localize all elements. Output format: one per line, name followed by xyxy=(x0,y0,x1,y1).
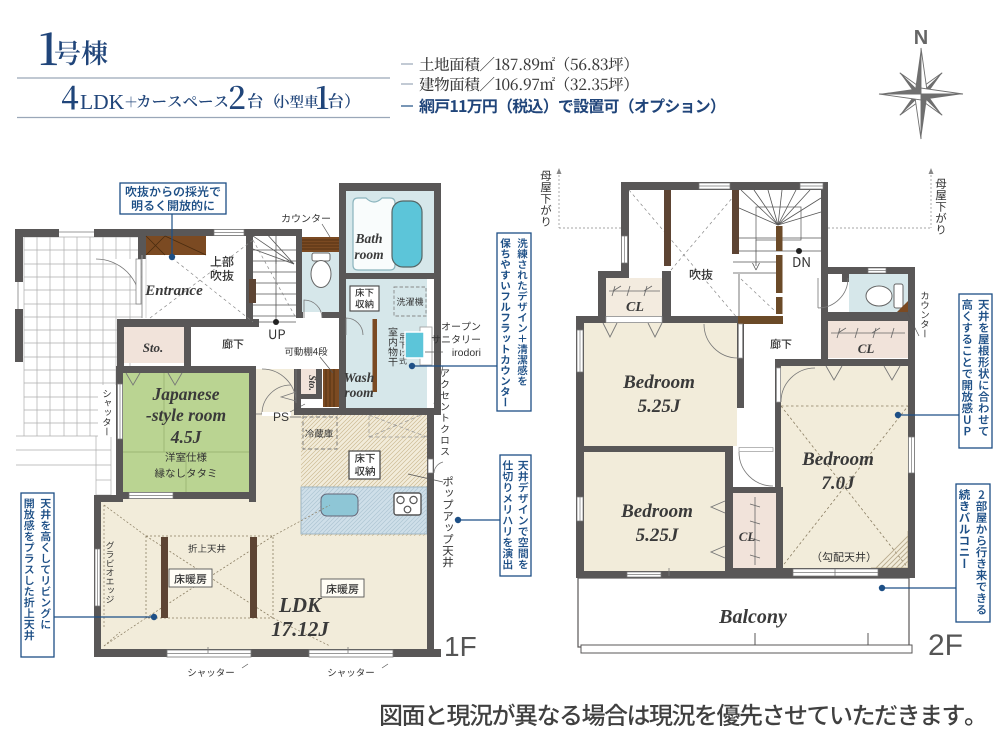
svg-text:7.0J: 7.0J xyxy=(821,473,855,494)
svg-text:room: room xyxy=(344,385,373,400)
svg-text:4.5J: 4.5J xyxy=(170,427,203,447)
svg-text:CL: CL xyxy=(858,341,875,356)
svg-text:CL: CL xyxy=(626,300,644,315)
svg-text:Entrance: Entrance xyxy=(144,283,203,299)
svg-text:1F: 1F xyxy=(444,631,477,662)
svg-text:N: N xyxy=(914,27,928,49)
svg-text:17.12J: 17.12J xyxy=(271,617,330,641)
svg-text:PS: PS xyxy=(273,410,289,424)
svg-text:irodori: irodori xyxy=(452,347,481,359)
svg-text:Bedroom: Bedroom xyxy=(801,449,874,470)
svg-text:Wash: Wash xyxy=(344,370,375,385)
svg-text:room: room xyxy=(354,247,383,262)
svg-text:CL: CL xyxy=(739,529,756,544)
svg-text:Sto.: Sto. xyxy=(143,340,164,355)
svg-text:Bedroom: Bedroom xyxy=(620,501,693,522)
svg-text:Sto.: Sto. xyxy=(306,375,317,391)
svg-text:LDK: LDK xyxy=(278,593,323,617)
svg-text:Bedroom: Bedroom xyxy=(622,372,695,393)
svg-text:Balcony: Balcony xyxy=(718,606,787,628)
svg-text:5.25J: 5.25J xyxy=(636,525,679,546)
svg-text:5.25J: 5.25J xyxy=(638,396,681,417)
svg-text:LDK: LDK xyxy=(80,90,125,114)
svg-text:Japanese: Japanese xyxy=(151,384,219,404)
svg-text:-style room: -style room xyxy=(146,405,226,425)
svg-text:2F: 2F xyxy=(928,629,963,662)
svg-text:Bath: Bath xyxy=(354,231,382,246)
